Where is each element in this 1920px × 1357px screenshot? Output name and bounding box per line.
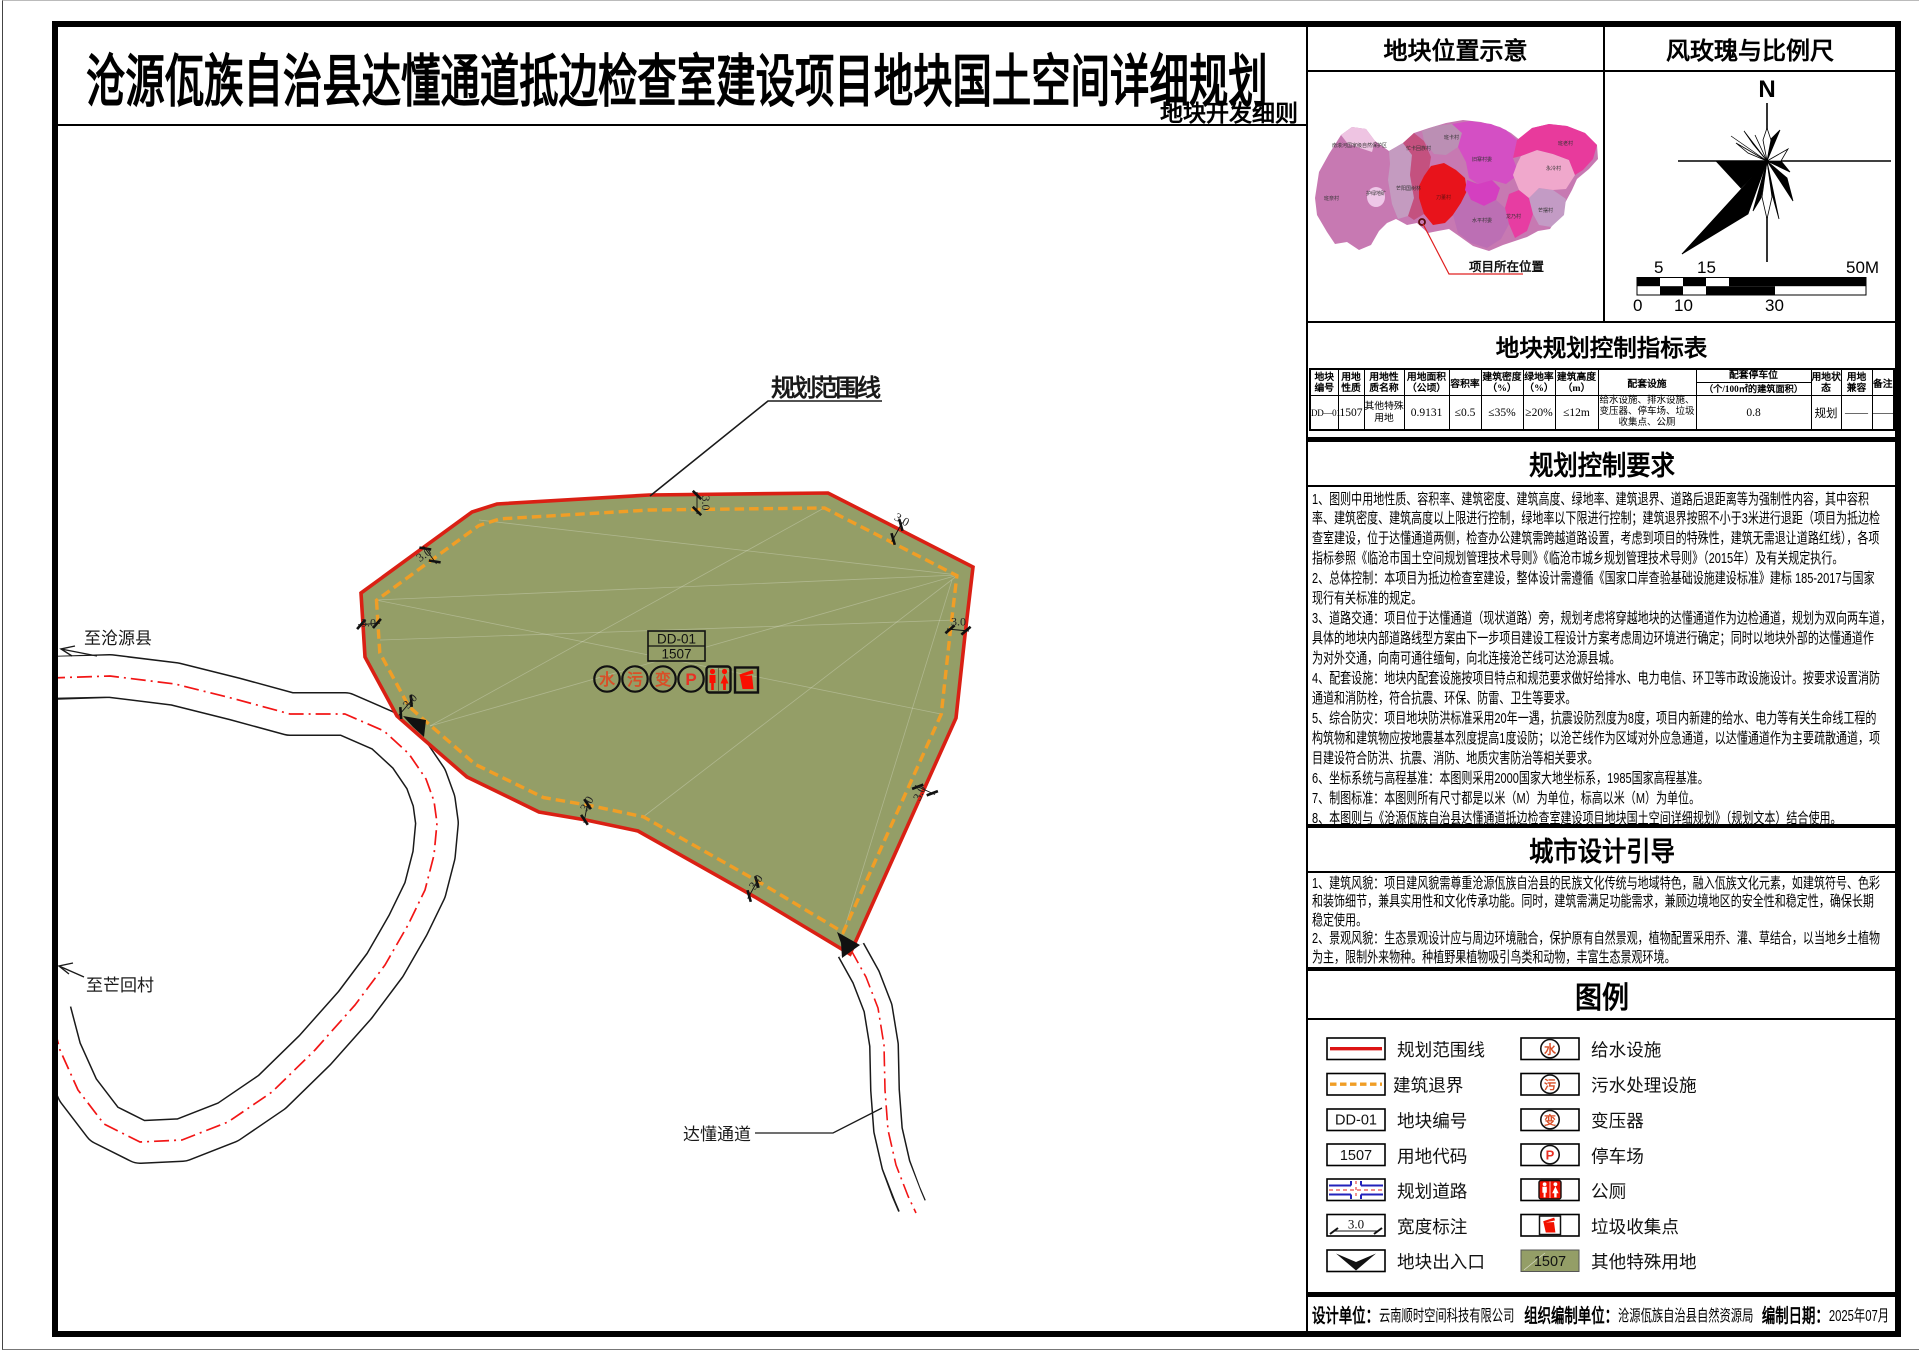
svg-text:公厕: 公厕 [1591, 1182, 1626, 1202]
svg-text:其他特殊用地: 其他特殊用地 [1591, 1252, 1697, 1272]
svg-text:班老村: 班老村 [1558, 140, 1573, 147]
svg-text:项目所在位置: 项目所在位置 [1469, 259, 1545, 274]
svg-text:建筑退界: 建筑退界 [1393, 1076, 1463, 1096]
svg-text:地块编号: 地块编号 [1397, 1111, 1467, 1131]
svg-text:刀董村: 刀董村 [1436, 194, 1451, 201]
svg-text:给水设施: 给水设施 [1591, 1040, 1661, 1060]
svg-text:班奈村: 班奈村 [1324, 195, 1339, 202]
svg-text:规划范围线: 规划范围线 [771, 375, 881, 402]
svg-text:3.0: 3.0 [361, 616, 376, 630]
svg-text:3.0: 3.0 [699, 496, 713, 511]
svg-text:1507: 1507 [1340, 1148, 1372, 1164]
svg-text:污水处理设施: 污水处理设施 [1591, 1076, 1697, 1096]
svg-text:水: 水 [599, 670, 616, 689]
svg-text:污: 污 [627, 670, 643, 689]
svg-text:班卡村: 班卡村 [1444, 134, 1459, 141]
svg-text:芒摆村: 芒摆村 [1538, 207, 1553, 214]
svg-text:N: N [1758, 76, 1775, 103]
svg-text:南滚河国家级自然保护区: 南滚河国家级自然保护区 [1332, 142, 1387, 149]
svg-text:P: P [685, 670, 696, 689]
svg-text:1507: 1507 [1534, 1254, 1566, 1270]
svg-text:3.0: 3.0 [951, 615, 966, 629]
svg-text:地块出入口: 地块出入口 [1397, 1252, 1485, 1272]
svg-text:水: 水 [1544, 1042, 1557, 1057]
svg-text:50M: 50M [1846, 258, 1879, 277]
svg-text:宽度标注: 宽度标注 [1397, 1217, 1467, 1237]
svg-text:忙卡回族村: 忙卡回族村 [1406, 145, 1431, 152]
svg-text:水平村委: 水平村委 [1472, 217, 1492, 224]
svg-text:护绿地矿: 护绿地矿 [1366, 190, 1386, 197]
svg-text:垃圾收集点: 垃圾收集点 [1591, 1217, 1679, 1237]
svg-text:达懂通道: 达懂通道 [683, 1125, 751, 1144]
svg-text:0: 0 [1633, 296, 1642, 315]
svg-text:至芒回村: 至芒回村 [86, 976, 154, 995]
svg-text:永冷村: 永冷村 [1546, 165, 1561, 172]
svg-text:停车场: 停车场 [1591, 1147, 1644, 1167]
svg-text:规划道路: 规划道路 [1397, 1182, 1468, 1202]
svg-text:至沧源县: 至沧源县 [84, 629, 152, 648]
svg-text:P: P [1546, 1148, 1555, 1163]
svg-text:旧寨村委: 旧寨村委 [1472, 156, 1492, 163]
svg-text:规划范围线: 规划范围线 [1397, 1040, 1485, 1060]
svg-text:用地代码: 用地代码 [1397, 1147, 1467, 1167]
svg-text:1507: 1507 [661, 647, 691, 662]
svg-text:龙乃村: 龙乃村 [1506, 213, 1521, 220]
svg-text:5: 5 [1654, 258, 1663, 277]
svg-text:DD-01: DD-01 [1335, 1113, 1377, 1129]
svg-text:3.0: 3.0 [1348, 1217, 1364, 1232]
svg-text:变: 变 [655, 670, 671, 689]
svg-text:污: 污 [1544, 1077, 1556, 1092]
svg-text:15: 15 [1697, 258, 1716, 277]
svg-text:变压器: 变压器 [1591, 1111, 1644, 1131]
svg-text:DD-01: DD-01 [657, 632, 696, 647]
svg-text:变: 变 [1544, 1113, 1556, 1128]
svg-text:30: 30 [1765, 296, 1784, 315]
svg-text:芒阳国树林: 芒阳国树林 [1396, 185, 1421, 192]
svg-text:10: 10 [1674, 296, 1693, 315]
